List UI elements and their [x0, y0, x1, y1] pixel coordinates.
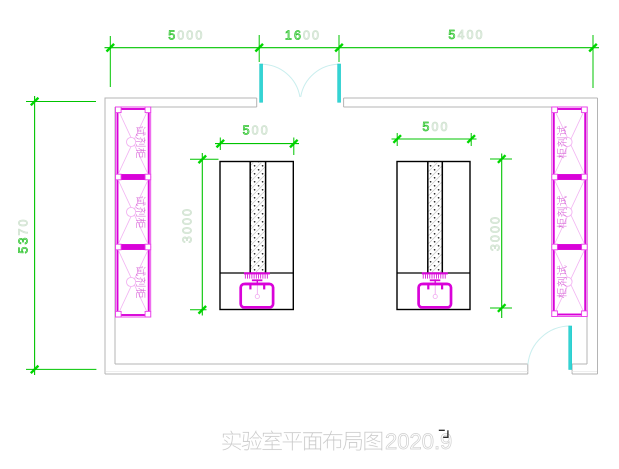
- svg-text:500: 500: [243, 124, 270, 138]
- svg-text:1600: 1600: [285, 29, 321, 43]
- svg-text:5400: 5400: [448, 28, 484, 42]
- svg-text:5000: 5000: [168, 29, 204, 43]
- svg-text:5370: 5370: [17, 217, 31, 253]
- svg-text:500: 500: [422, 120, 449, 134]
- svg-text:3000: 3000: [489, 215, 503, 251]
- svg-text:3000: 3000: [181, 207, 195, 243]
- svg-text:2020.9: 2020.9: [385, 429, 452, 454]
